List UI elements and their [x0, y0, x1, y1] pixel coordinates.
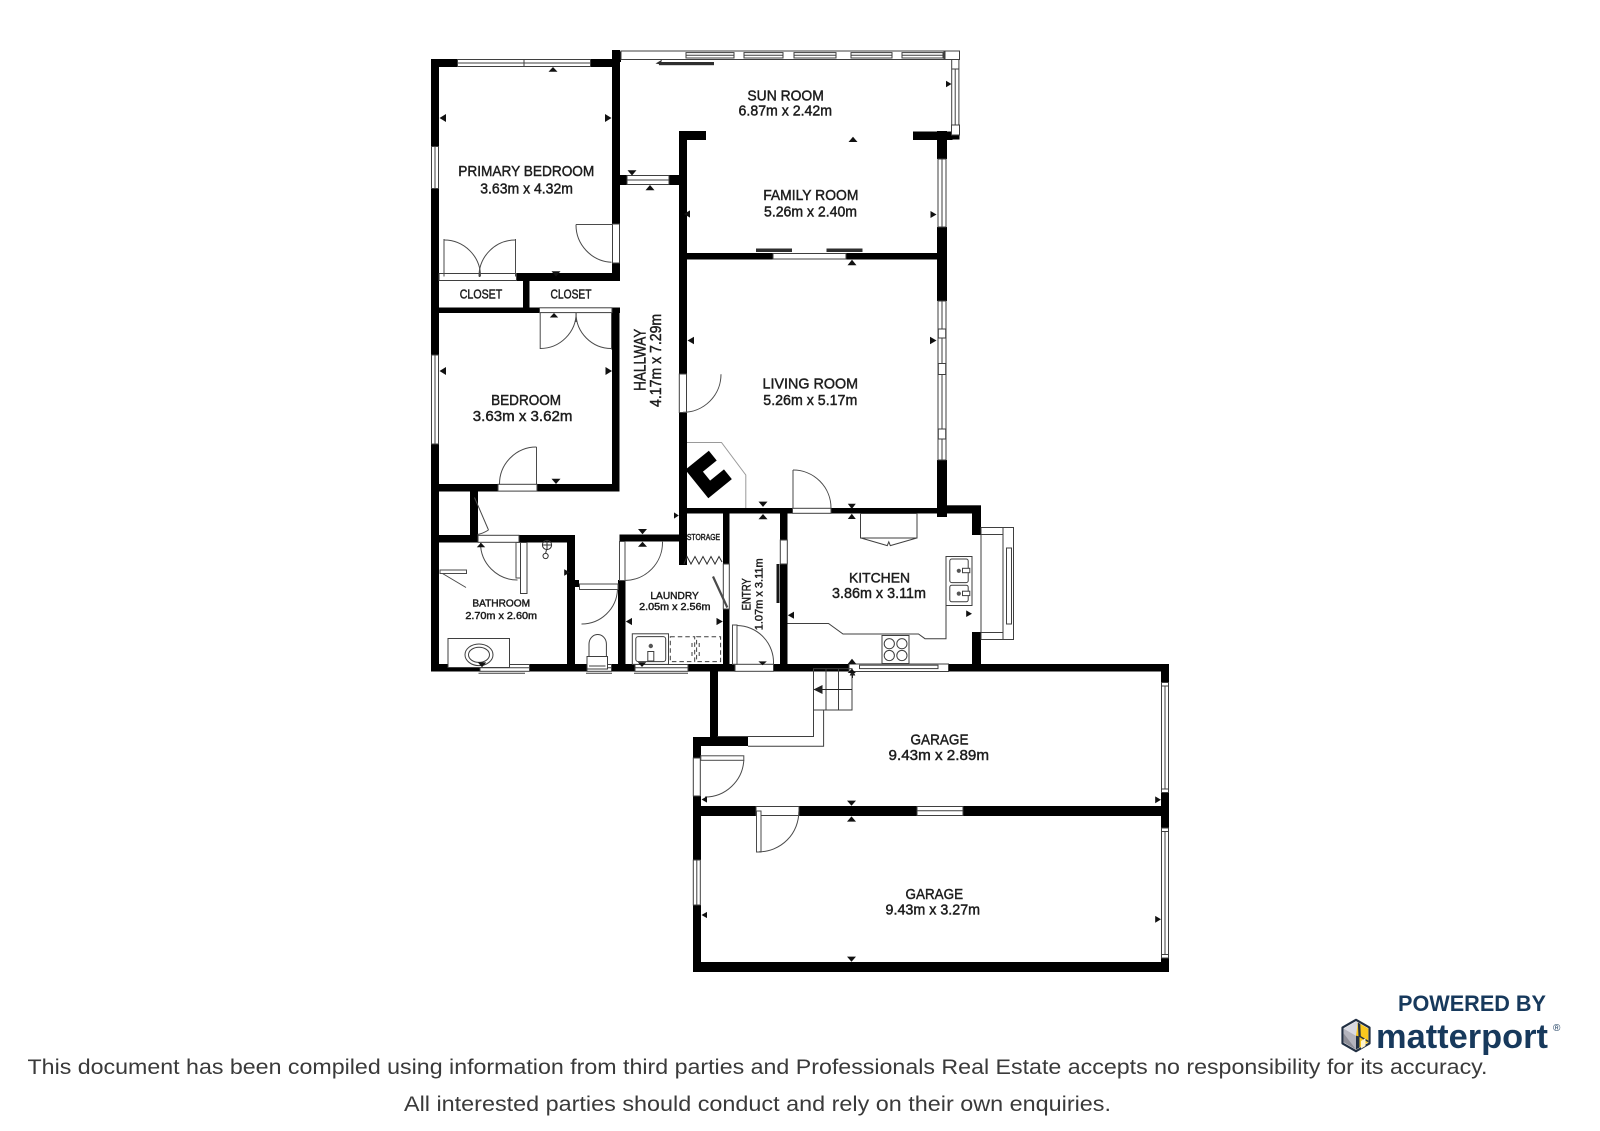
svg-text:®: ®	[1553, 1023, 1561, 1034]
svg-text:LIVING ROOM: LIVING ROOM	[763, 376, 859, 393]
svg-text:All interested parties should: All interested parties should conduct an…	[404, 1093, 1111, 1116]
svg-text:PRIMARY BEDROOM: PRIMARY BEDROOM	[458, 163, 594, 180]
svg-text:STORAGE: STORAGE	[687, 533, 721, 542]
svg-text:3.63m x 4.32m: 3.63m x 4.32m	[480, 181, 573, 197]
svg-text:matterport: matterport	[1376, 1018, 1548, 1056]
svg-text:CLOSET: CLOSET	[460, 288, 503, 302]
svg-text:1.07m x 3.11m: 1.07m x 3.11m	[753, 558, 765, 630]
svg-text:This document has been compile: This document has been compiled using in…	[28, 1056, 1488, 1079]
svg-text:KITCHEN: KITCHEN	[849, 570, 910, 586]
svg-text:BEDROOM: BEDROOM	[491, 392, 561, 409]
svg-text:GARAGE: GARAGE	[911, 732, 969, 749]
svg-text:2.05m x 2.56m: 2.05m x 2.56m	[639, 602, 710, 613]
svg-text:4.17m x 7.29m: 4.17m x 7.29m	[648, 314, 665, 407]
svg-text:FAMILY ROOM: FAMILY ROOM	[763, 187, 858, 204]
svg-text:9.43m x 3.27m: 9.43m x 3.27m	[886, 903, 981, 919]
svg-text:3.63m x 3.62m: 3.63m x 3.62m	[473, 409, 573, 425]
svg-text:9.43m x 2.89m: 9.43m x 2.89m	[889, 748, 990, 764]
svg-text:ENTRY: ENTRY	[742, 578, 754, 610]
svg-text:3.86m x 3.11m: 3.86m x 3.11m	[832, 586, 926, 602]
svg-text:BATHROOM: BATHROOM	[472, 599, 530, 610]
svg-text:CLOSET: CLOSET	[551, 288, 592, 302]
svg-text:SUN ROOM: SUN ROOM	[747, 88, 823, 105]
svg-text:HALLWAY: HALLWAY	[631, 329, 650, 391]
svg-text:6.87m x 2.42m: 6.87m x 2.42m	[739, 104, 833, 120]
svg-text:LAUNDRY: LAUNDRY	[650, 591, 699, 602]
svg-text:5.26m x 2.40m: 5.26m x 2.40m	[764, 205, 857, 221]
svg-text:5.26m x 5.17m: 5.26m x 5.17m	[763, 393, 857, 409]
svg-text:GARAGE: GARAGE	[906, 886, 964, 903]
svg-text:POWERED BY: POWERED BY	[1398, 991, 1546, 1016]
svg-text:2.70m x 2.60m: 2.70m x 2.60m	[465, 611, 537, 622]
